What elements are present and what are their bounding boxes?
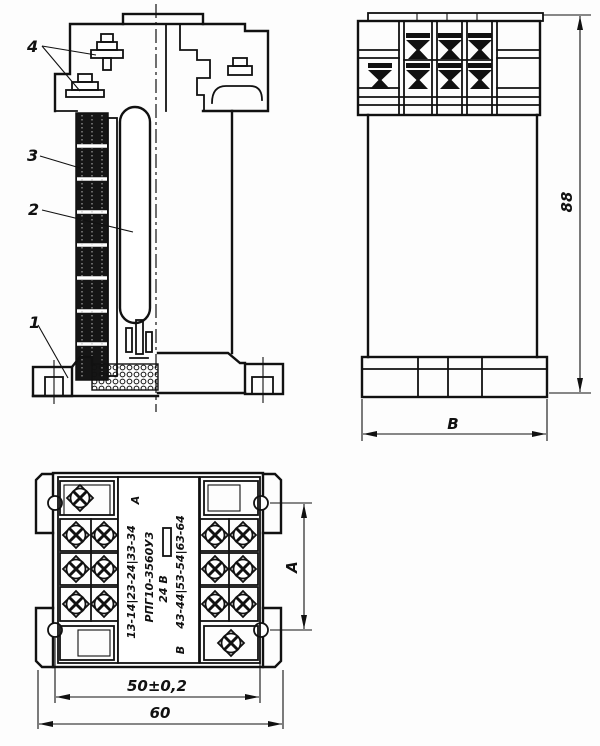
front-view: 88 В: [358, 13, 591, 441]
screw-terminal-icon: [91, 591, 117, 617]
mounting-hole: [254, 496, 268, 510]
side-section-view: 4 3 2 1: [26, 4, 283, 412]
screw-terminal-icon: [91, 556, 117, 582]
mounting-hole: [254, 623, 268, 637]
screw-terminal-icon: [218, 630, 244, 656]
clamp-contact-icon: [468, 33, 492, 59]
screw-terminal-icon: [63, 591, 89, 617]
mark-b: В: [174, 646, 187, 654]
relay-drawing-svg: 4 3 2 1: [0, 0, 600, 746]
contact-hook: [212, 86, 262, 103]
dimension-B: В: [362, 399, 547, 441]
coil-voltage: 24 В: [157, 575, 170, 603]
armature: [120, 107, 150, 323]
nameplate: 13-14|23-24|33-34 А РПГ10-3560У3 24 В 43…: [118, 477, 199, 663]
dim-mount-span-label: А: [283, 561, 301, 574]
mounting-foot-left: [33, 367, 72, 396]
screw-terminal-icon: [202, 591, 228, 617]
screw-terminal-icon: [67, 485, 93, 511]
base-section: [33, 111, 283, 404]
clamp-contact-icon: [406, 63, 430, 89]
screw-terminal-icon: [230, 591, 256, 617]
clamp-contact-icon: [438, 63, 462, 89]
relay-type: РПГ10-3560У3: [143, 531, 156, 622]
callout-1: 1: [29, 313, 40, 332]
bottom-view: 13-14|23-24|33-34 А РПГ10-3560У3 24 В 43…: [36, 473, 312, 729]
callout-3: 3: [27, 146, 38, 165]
dim-hole-spacing-label: 50±0,2: [127, 677, 187, 695]
screw-terminal-icon: [63, 522, 89, 548]
head-inner-step: [180, 24, 210, 111]
mounting-foot-right: [245, 364, 283, 394]
screw-terminal-icon: [230, 556, 256, 582]
clamp-contact-icon: [468, 63, 492, 89]
contacts-row-b: 43-44|53-54|63-64: [174, 515, 187, 630]
callout-2: 2: [28, 200, 39, 219]
screw-terminal-icon: [230, 522, 256, 548]
dimension-88: 88: [543, 15, 591, 393]
screw-terminal-icon: [228, 58, 252, 75]
screw-terminal-icon: [91, 522, 117, 548]
dim-base-width-label: В: [447, 415, 458, 433]
callout-4: 4: [26, 37, 38, 56]
screw-terminal-icon: [202, 556, 228, 582]
screw-terminal-icon: [66, 74, 104, 97]
screw-terminal-icon: [63, 556, 89, 582]
dim-height-label: 88: [558, 192, 576, 213]
clamp-contact-icon: [438, 33, 462, 59]
dimension-A: А: [270, 503, 312, 630]
technical-drawing-sheet: 4 3 2 1: [0, 0, 600, 746]
front-base: [362, 357, 547, 397]
contact-stack: [76, 113, 117, 380]
dim-overall-width-label: 60: [150, 704, 171, 722]
return-spring-parts: [126, 320, 152, 358]
clamp-contact-icon: [406, 33, 430, 59]
screw-terminal-icon: [202, 522, 228, 548]
screw-terminal-icon: [91, 34, 123, 70]
clamp-contact-icon: [368, 63, 392, 89]
top-cap: [123, 14, 203, 24]
mark-a: А: [129, 496, 142, 506]
contacts-row-a: 13-14|23-24|33-34: [125, 525, 138, 639]
